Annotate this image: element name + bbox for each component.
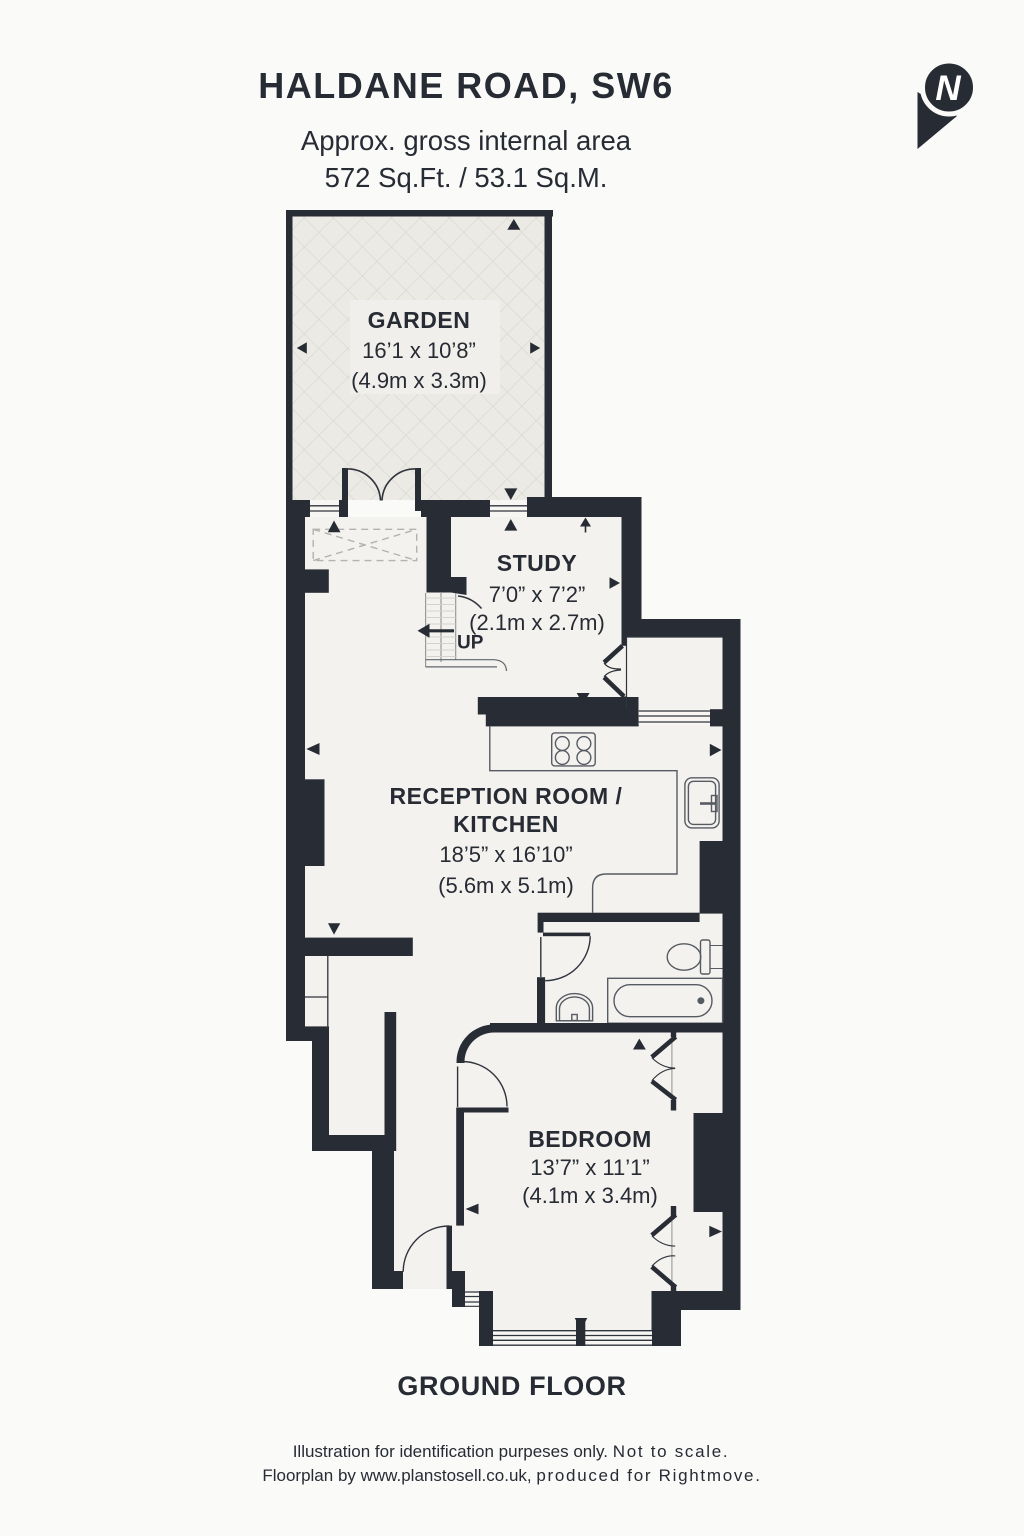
svg-text:HALDANE ROAD, SW6: HALDANE ROAD, SW6 <box>258 65 674 106</box>
svg-text:7’0” x 7’2”: 7’0” x 7’2” <box>489 582 586 607</box>
svg-text:13’7” x 11’1”: 13’7” x 11’1” <box>530 1155 649 1180</box>
svg-text:572 Sq.Ft. / 53.1 Sq.M.: 572 Sq.Ft. / 53.1 Sq.M. <box>325 162 608 193</box>
svg-text:STUDY: STUDY <box>497 550 577 576</box>
svg-text:GARDEN: GARDEN <box>368 307 471 333</box>
svg-text:(4.1m x 3.4m): (4.1m x 3.4m) <box>522 1183 658 1208</box>
svg-text:Approx. gross internal area: Approx. gross internal area <box>301 125 632 156</box>
svg-text:BEDROOM: BEDROOM <box>528 1126 652 1152</box>
svg-text:16’1 x 10’8”: 16’1 x 10’8” <box>362 338 476 363</box>
svg-text:GROUND FLOOR: GROUND FLOOR <box>397 1371 626 1401</box>
svg-text:18’5” x 16’10”: 18’5” x 16’10” <box>439 842 572 867</box>
svg-text:RECEPTION ROOM /: RECEPTION ROOM / <box>390 783 623 809</box>
svg-text:(5.6m x 5.1m): (5.6m x 5.1m) <box>438 873 574 898</box>
svg-text:KITCHEN: KITCHEN <box>453 811 559 837</box>
svg-text:Floorplan by www.planstosell.c: Floorplan by www.planstosell.co.uk, prod… <box>262 1466 761 1485</box>
svg-text:(2.1m x 2.7m): (2.1m x 2.7m) <box>469 610 605 635</box>
svg-text:Illustration for identificatio: Illustration for identification purpeses… <box>293 1442 730 1461</box>
svg-text:UP: UP <box>457 633 484 654</box>
svg-text:N: N <box>935 69 961 108</box>
svg-text:(4.9m x 3.3m): (4.9m x 3.3m) <box>351 368 487 393</box>
